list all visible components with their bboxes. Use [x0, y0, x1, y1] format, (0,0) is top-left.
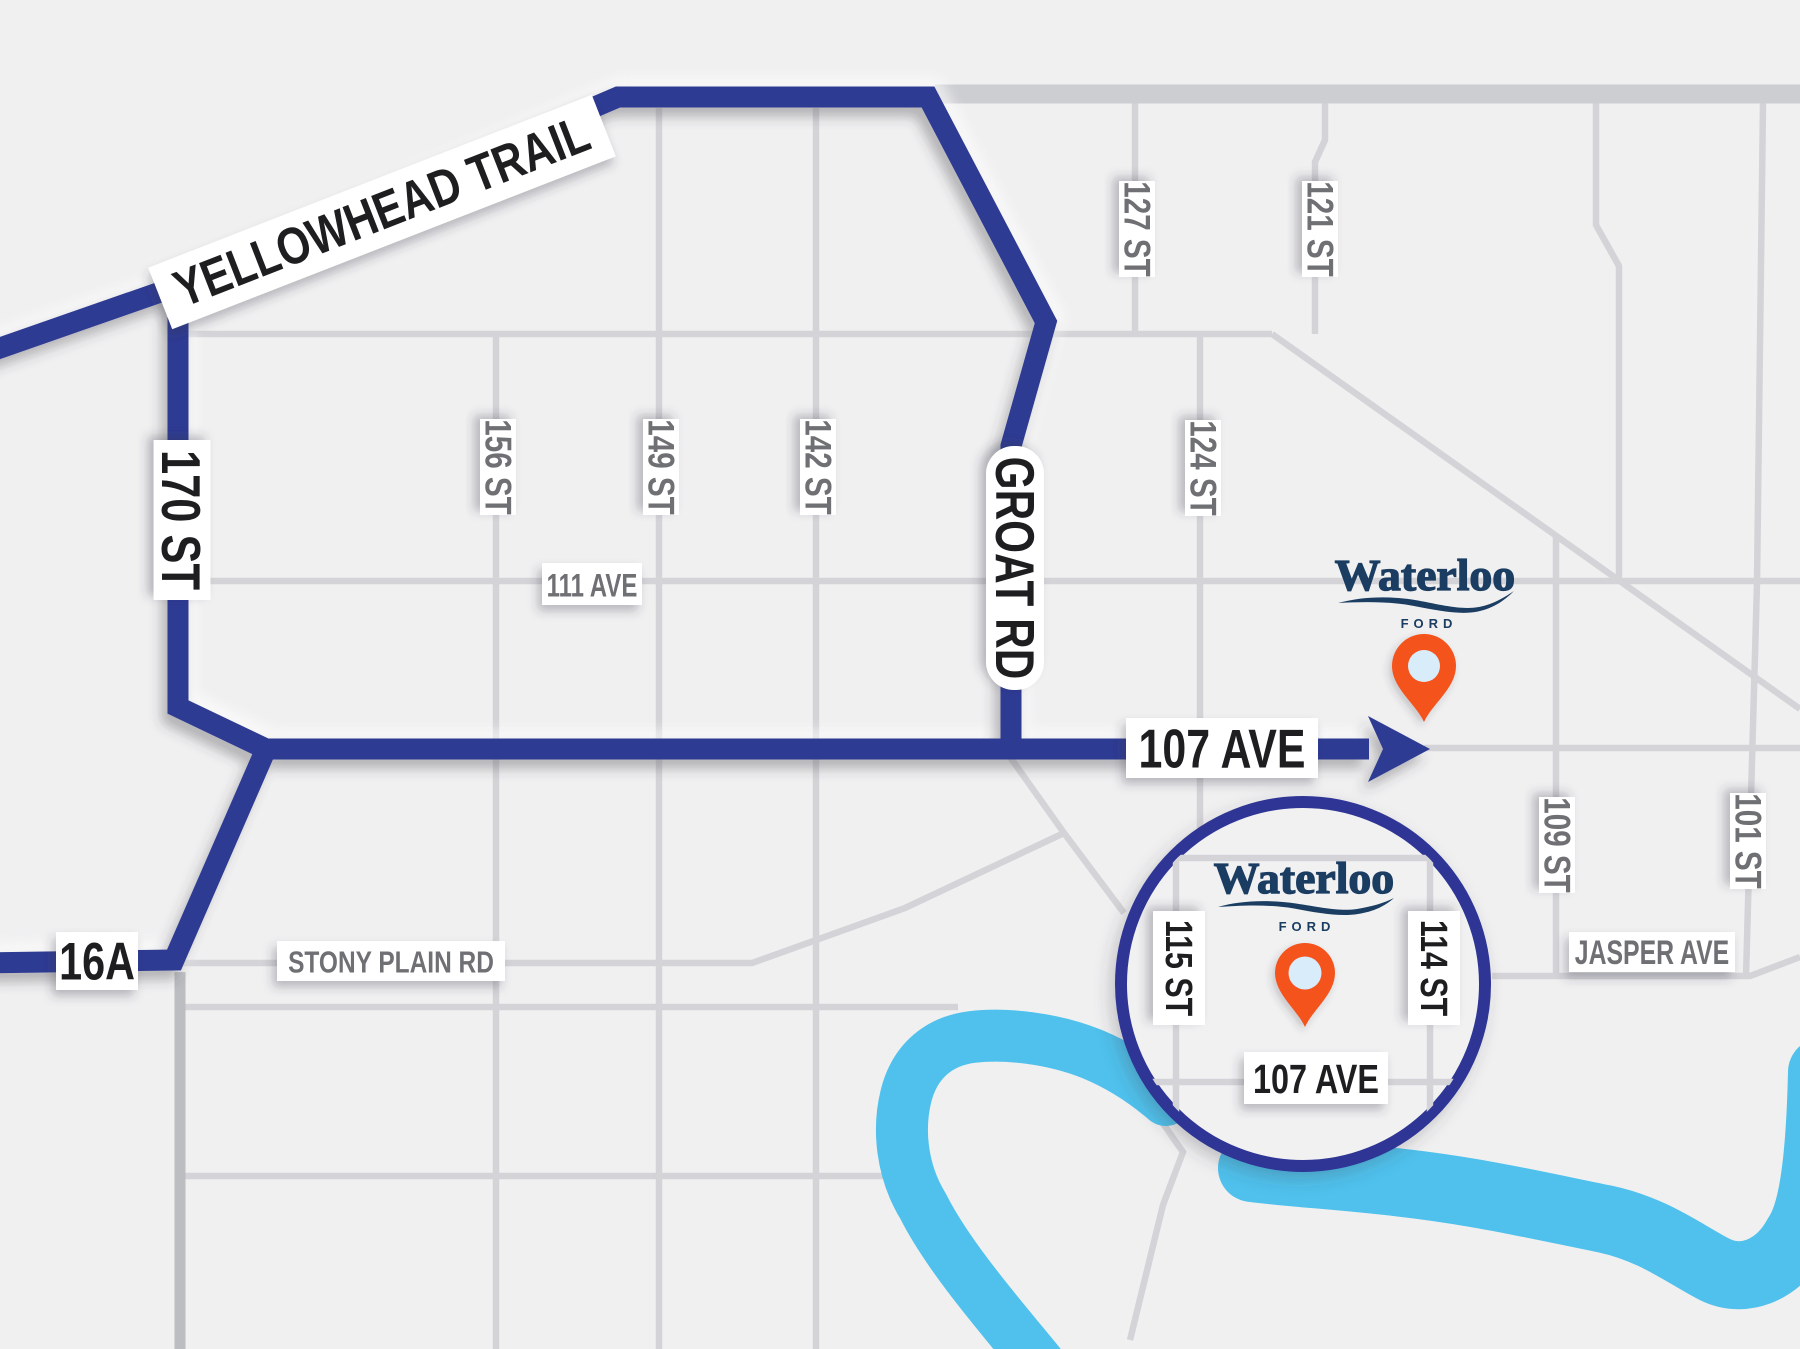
svg-text:109 ST: 109 ST [1536, 797, 1577, 893]
svg-text:149 ST: 149 ST [640, 419, 681, 515]
svg-text:107 AVE: 107 AVE [1139, 718, 1306, 779]
svg-text:142 ST: 142 ST [797, 419, 838, 515]
svg-text:101 ST: 101 ST [1727, 793, 1768, 889]
svg-text:127 ST: 127 ST [1116, 181, 1157, 277]
svg-text:Waterloo: Waterloo [1214, 854, 1394, 903]
svg-text:JASPER AVE: JASPER AVE [1575, 934, 1729, 972]
svg-text:156 ST: 156 ST [477, 419, 518, 515]
svg-text:STONY PLAIN RD: STONY PLAIN RD [288, 945, 494, 979]
svg-text:FORD: FORD [1401, 616, 1458, 631]
svg-text:107 AVE: 107 AVE [1253, 1056, 1379, 1101]
svg-text:115 ST: 115 ST [1157, 920, 1199, 1016]
svg-text:170 ST: 170 ST [150, 450, 212, 590]
svg-text:Waterloo: Waterloo [1335, 551, 1515, 600]
svg-text:121 ST: 121 ST [1299, 181, 1340, 277]
svg-text:16A: 16A [59, 932, 135, 991]
svg-text:FORD: FORD [1279, 919, 1336, 934]
svg-text:GROAT RD: GROAT RD [984, 457, 1045, 680]
svg-text:111 AVE: 111 AVE [547, 567, 638, 603]
svg-text:114 ST: 114 ST [1412, 920, 1454, 1016]
svg-text:124 ST: 124 ST [1182, 420, 1223, 516]
